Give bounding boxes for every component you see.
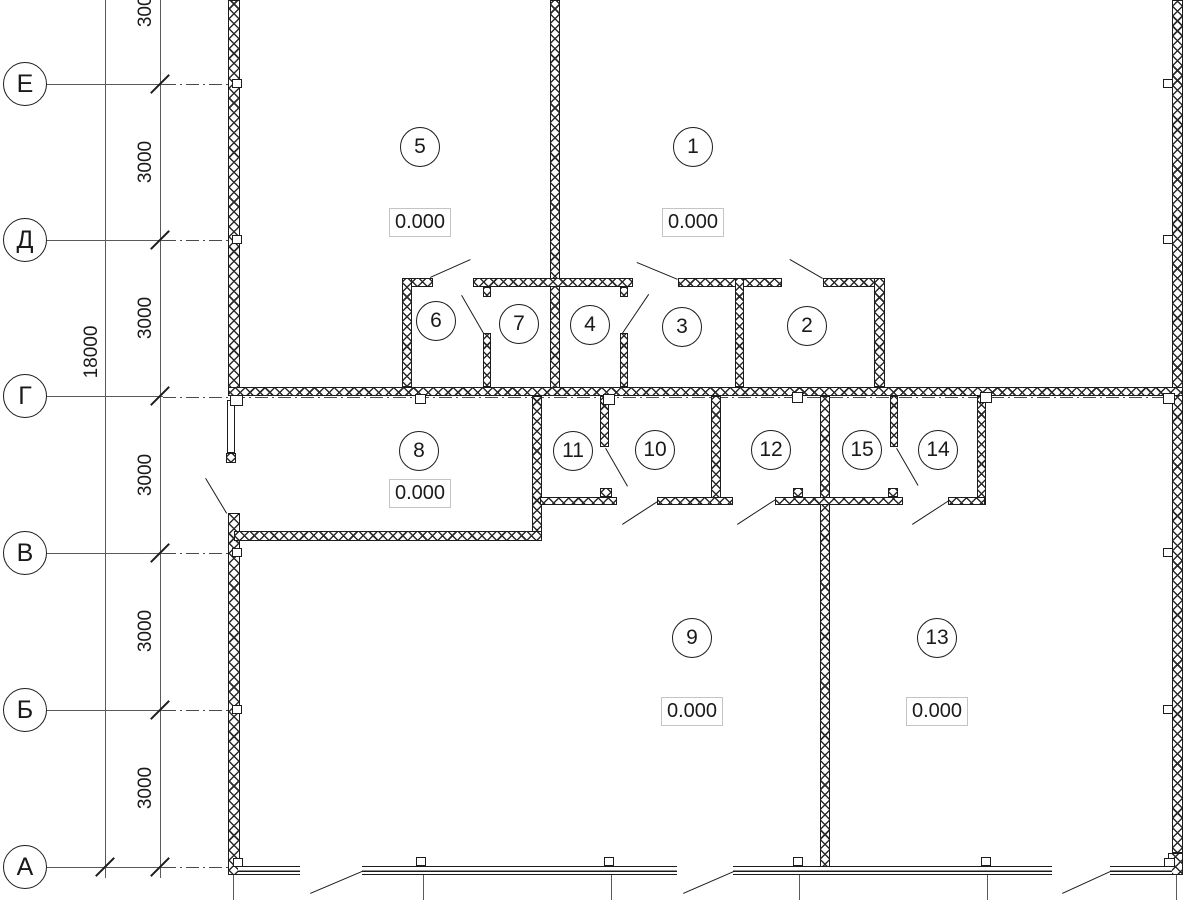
room-number: 14 [926,438,949,462]
dim-label-3000-1: 3000 [135,130,157,194]
axis-label-G: Г [18,382,32,411]
wall-left-outer-lower [228,513,240,875]
door-swing-line [737,499,776,525]
wall-room8-right [532,396,542,541]
room-tag-13: 13 [917,618,957,658]
wall-room6-left [402,278,412,387]
dim-label-3000-3: 3000 [135,443,157,507]
room-tag-10: 10 [635,430,675,470]
wall-right-outer [1172,0,1183,853]
door-swing-line [461,295,484,334]
room-tag-2: 2 [787,306,827,346]
axis-marker [792,392,803,403]
door-swing-line [605,448,628,487]
door-swing-line [622,294,649,334]
axis-marker [230,395,243,406]
axis-marker [1163,548,1173,557]
room-number: 13 [925,626,948,650]
wall-part-10-12 [711,396,721,505]
elevation-label-room-8: 0.000 [389,479,451,508]
room-tag-6: 6 [416,301,456,341]
wall-strip-top-2 [473,278,633,287]
room-tag-8: 8 [399,431,439,471]
wall-part-6-7 [483,333,491,387]
axis-marker [980,392,992,403]
room-number: 1 [687,135,699,159]
room-number: 12 [759,438,782,462]
wall-part-4-3-stub [620,287,628,297]
column-axis-line [611,874,612,900]
wall-room8-bottom [234,531,542,541]
elevation-label-room-5: 0.000 [389,208,451,237]
axis-bubble-D: Д [3,218,47,262]
axis-marker [603,394,615,405]
dim-label-3000-5: 3000 [135,756,157,820]
axis-marker [1164,858,1175,867]
door-swing-line [896,448,918,486]
window-strip-2 [362,866,677,875]
elevation-label-room-1: 0.000 [662,208,724,237]
axis-label-E: Е [17,70,34,99]
axis-line-B [47,710,163,711]
axis-line-E [47,84,163,85]
wall-part-3-2 [735,278,744,387]
door-swing-line [622,501,658,525]
window-strip-4 [1110,866,1172,875]
wall-left-outer-upper [228,0,240,390]
wall-row-G [228,387,1183,396]
axis-marker [1163,235,1173,244]
room-number: 8 [413,439,425,463]
dim-label-3000-2: 3000 [135,286,157,350]
wall-room9-room13 [820,396,830,875]
axis-marker [232,705,242,714]
room-tag-1: 1 [673,127,713,167]
axis-line-B-dashdot [163,710,228,711]
axis-marker [233,858,243,867]
axis-marker [1163,79,1173,88]
room-tag-12: 12 [751,430,791,470]
room-tag-9: 9 [672,618,712,658]
axis-marker [232,79,242,88]
column-axis-line [987,874,988,900]
axis-label-V: В [17,539,34,568]
room-number: 5 [414,135,426,159]
door-jamb-15-14 [888,488,898,497]
door-swing-line [790,259,823,279]
door-swing-line [430,259,471,278]
window-strip-1 [238,866,300,875]
wall-room2-right [874,278,885,387]
axis-line-D-dashdot [163,240,228,241]
wall-bottom-10-12 [657,497,733,505]
axis-bubble-V: В [3,531,47,575]
room-number: 6 [430,309,442,333]
room-tag-14: 14 [918,430,958,470]
axis-marker [604,857,614,866]
axis-line-A-dashdot [163,867,233,868]
room-number: 10 [643,438,666,462]
room-tag-5: 5 [400,127,440,167]
door-swing-line [912,501,949,525]
wall-part-15-14 [890,396,898,447]
column-axis-line [233,874,234,900]
dim-label-3000-0: 3000 [135,0,157,38]
axis-bubble-G: Г [3,374,47,418]
elevation-label-room-9: 0.000 [661,697,723,726]
axis-bubble-B: Б [3,688,47,732]
room-tag-15: 15 [842,430,882,470]
wall-room14-right [977,396,986,505]
room-tag-7: 7 [499,304,539,344]
column-axis-line [1176,874,1177,900]
axis-marker [415,394,426,404]
room-number: 9 [686,626,698,650]
room-tag-3: 3 [662,307,702,347]
room-number: 15 [850,438,873,462]
wall-strip-top-3 [678,278,782,287]
dimension-line-total [105,0,106,878]
room-tag-11: 11 [553,431,593,471]
window-strip-3 [733,866,1052,875]
axis-marker [1163,705,1173,714]
axis-marker [232,235,242,244]
wall-part-4-3 [620,333,628,387]
door-swing-line [637,262,678,280]
column-axis-line [799,874,800,900]
axis-marker [416,857,426,866]
axis-line-V [47,553,163,554]
room-number: 4 [584,313,596,337]
door-jamb-12 [793,488,803,497]
room-number: 3 [676,315,688,339]
axis-label-A: А [17,853,34,882]
wall-bottom-14 [948,497,985,505]
axis-marker [1163,393,1175,404]
axis-line-E-dashdot [163,84,228,85]
axis-marker [981,857,991,866]
axis-label-D: Д [17,226,34,255]
room-number: 2 [801,314,813,338]
wall-bottom-11 [540,497,617,505]
wall-main-vertical [550,0,560,396]
column-axis-line [423,874,424,900]
door-leaf-left-wall [227,400,235,453]
door-swing-line [1062,871,1111,894]
room-number: 7 [513,312,525,336]
floor-plan-drawing: 3000 3000 3000 3000 3000 3000 18000 Е Д … [0,0,1200,900]
door-jamb-11-10 [600,488,612,497]
door-swing-line [683,871,734,894]
wall-part-6-7-stub [483,287,491,297]
axis-marker [232,548,242,557]
axis-bubble-A: А [3,845,47,889]
room-number: 11 [562,439,584,463]
axis-bubble-E: Е [3,62,47,106]
dim-label-18000: 18000 [81,317,103,387]
wall-bottom-12-15 [775,497,903,505]
room-tag-4: 4 [570,305,610,345]
door-leaf-end-block [226,453,236,463]
dimension-line-segments [160,0,161,878]
axis-line-G [47,396,163,397]
axis-label-B: Б [17,696,33,725]
elevation-label-room-13: 0.000 [906,697,968,726]
door-swing-line [310,871,363,894]
axis-line-D [47,240,163,241]
door-swing-line [205,478,227,514]
axis-line-G-dashdot [163,397,1183,398]
axis-marker [793,857,803,866]
axis-line-V-dashdot [163,553,228,554]
dim-label-3000-4: 3000 [135,599,157,663]
